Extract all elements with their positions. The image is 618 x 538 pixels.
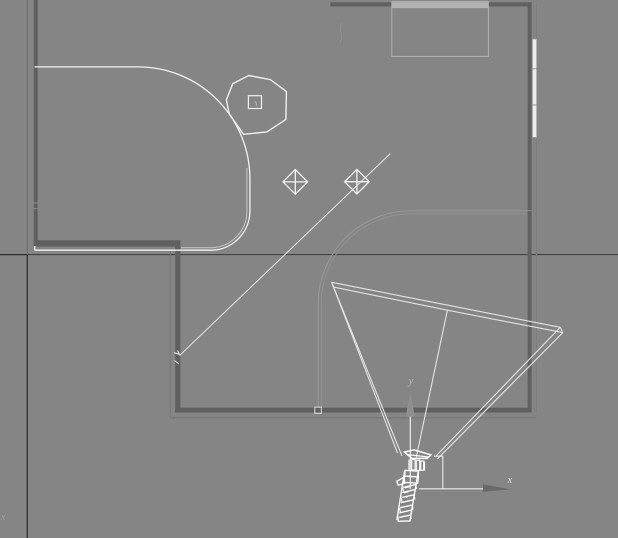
- svg-text:x: x: [507, 475, 513, 486]
- svg-text:x: x: [0, 512, 6, 523]
- svg-text:y: y: [408, 375, 414, 387]
